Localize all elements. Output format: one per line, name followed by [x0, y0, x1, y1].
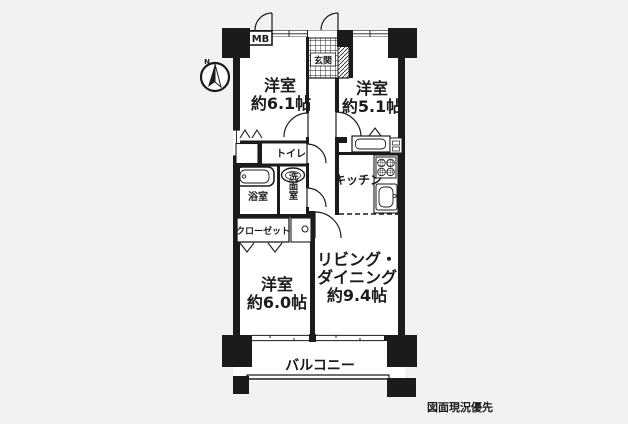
entrance-door	[321, 13, 338, 30]
svg-text:約6.0帖: 約6.0帖	[247, 293, 307, 312]
meter-box-label: MB	[252, 34, 270, 45]
svg-text:キッチン: キッチン	[334, 173, 382, 187]
laundry-space	[291, 218, 311, 242]
top-wall-openings	[272, 30, 388, 37]
svg-text:リビング・: リビング・	[317, 250, 397, 269]
north-compass-icon: N	[201, 58, 229, 91]
compass-label: N	[204, 58, 210, 66]
svg-text:洋室: 洋室	[264, 76, 296, 95]
svg-text:洋室: 洋室	[261, 275, 293, 294]
svg-text:洗面室: 洗面室	[287, 171, 299, 200]
meter-box: MB	[249, 31, 272, 45]
entrance-label: 玄関	[314, 55, 332, 67]
kitchen-label: キッチン	[334, 173, 382, 187]
mb-door	[255, 13, 272, 30]
toilet-label: トイレ	[276, 148, 306, 160]
balcony-label: バルコニー	[285, 358, 355, 374]
floor-plan-image: MB 玄関	[0, 0, 628, 420]
svg-text:約6.1帖: 約6.1帖	[251, 94, 311, 113]
svg-text:約5.1帖: 約5.1帖	[342, 97, 402, 116]
washroom-label: 洗面室	[287, 171, 299, 200]
balcony-sliding-doors	[252, 334, 384, 342]
water-heater	[390, 138, 402, 153]
svg-text:トイレ: トイレ	[276, 148, 306, 160]
living-dining-label: リビング・ ダイニング 約9.4帖	[317, 250, 397, 305]
drawing-note: 図面現況優先	[427, 400, 493, 414]
svg-text:洋室: 洋室	[356, 79, 388, 98]
floor-plan-svg: MB 玄関	[0, 0, 628, 420]
svg-text:バルコニー: バルコニー	[285, 358, 355, 374]
svg-text:クローゼット: クローゼット	[236, 225, 290, 237]
svg-text:浴室: 浴室	[248, 190, 268, 203]
svg-text:約9.4帖: 約9.4帖	[327, 286, 387, 305]
bath-label: 浴室	[248, 190, 268, 203]
closet-label: クローゼット	[236, 225, 290, 237]
svg-text:ダイニング: ダイニング	[317, 268, 397, 287]
